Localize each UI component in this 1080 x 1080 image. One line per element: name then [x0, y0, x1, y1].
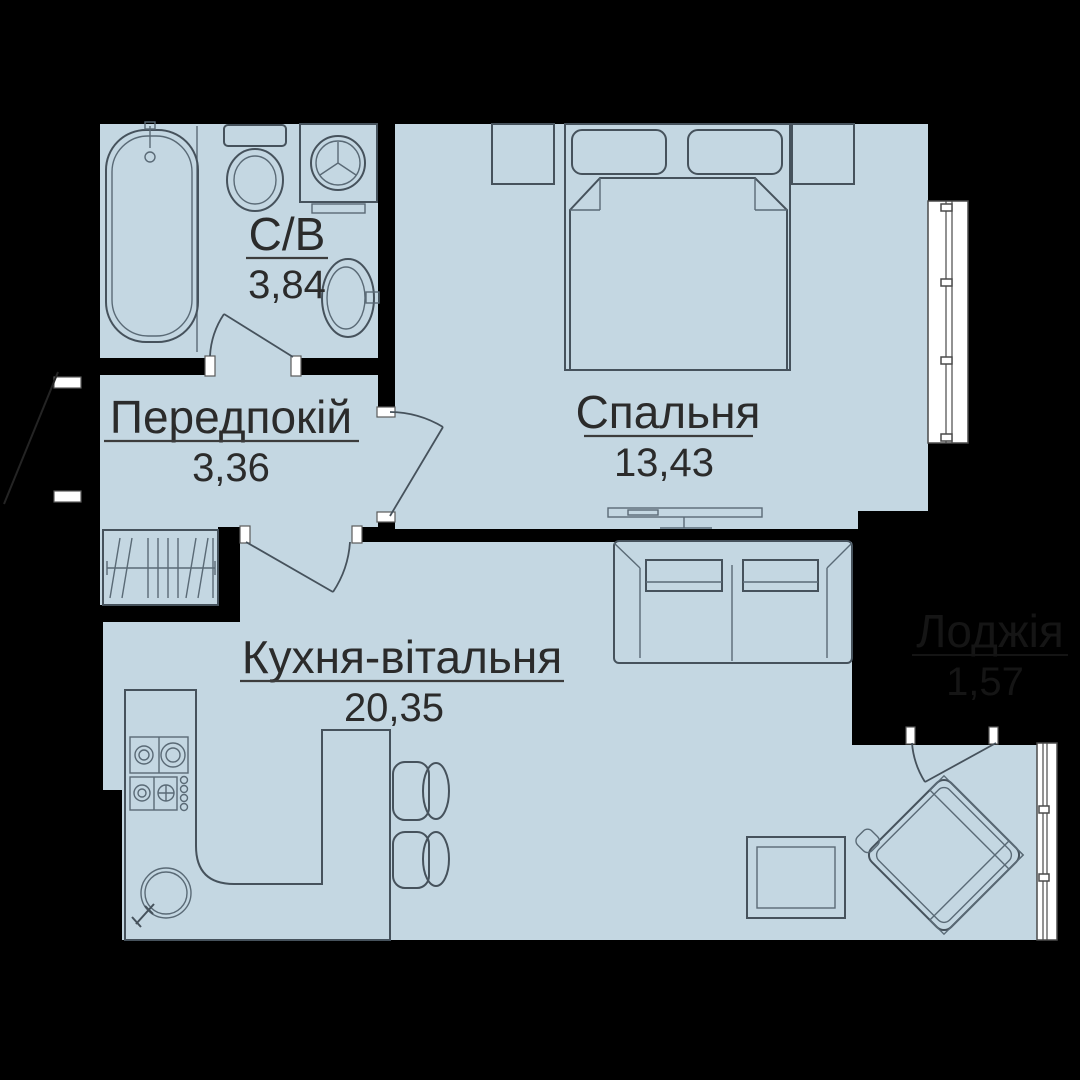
floor-plan-svg: С/В 3,84 Передпокій 3,36 Спальня 13,43 К…	[0, 0, 1080, 1080]
loggia-label: Лоджія	[916, 605, 1064, 657]
floor-plan-page: С/В 3,84 Передпокій 3,36 Спальня 13,43 К…	[0, 0, 1080, 1080]
hallway-area: 3,36	[192, 446, 270, 490]
loggia-area: 1,57	[946, 660, 1024, 704]
bathroom-door-opening	[215, 357, 291, 376]
kitchen-living-label: Кухня-вітальня	[242, 631, 562, 683]
bathroom-label: С/В	[249, 208, 326, 260]
entrance-jamb	[54, 491, 81, 502]
wall-step	[858, 511, 928, 531]
kitchen-door-opening	[250, 527, 352, 543]
hallway-label: Передпокій	[110, 391, 352, 443]
kitchen-living-area: 20,35	[344, 686, 444, 730]
living-window	[1037, 743, 1057, 940]
bathroom-area: 3,84	[248, 263, 326, 307]
bedroom-door-opening	[376, 417, 395, 512]
bedroom-label: Спальня	[576, 386, 761, 438]
bedroom-area: 13,43	[614, 441, 714, 485]
entrance-jamb	[54, 377, 81, 388]
bedroom-window	[928, 201, 968, 443]
